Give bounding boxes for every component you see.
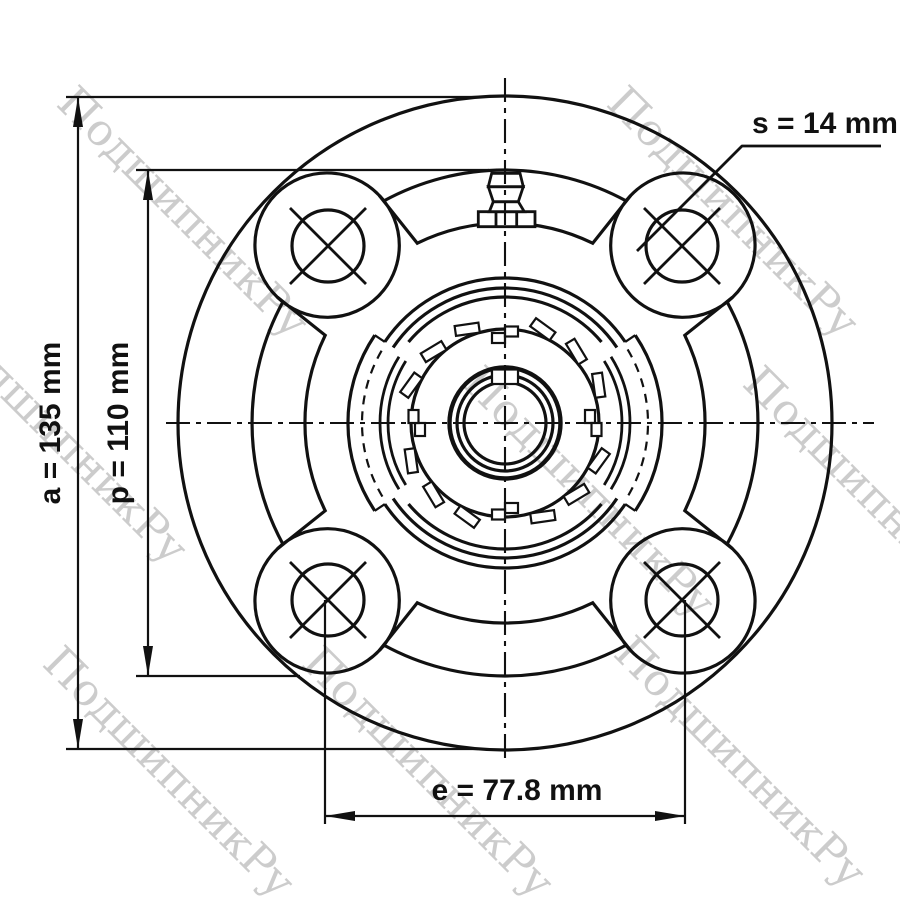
drawing-canvas: ПодшипникРу ПодшипникРу ПодшипникРу Подш…	[0, 0, 900, 900]
arrowhead-down	[73, 719, 83, 749]
grease-fitting	[478, 173, 535, 226]
dimension-s-label: s = 14 mm	[752, 107, 898, 140]
grease-fitting-base	[478, 212, 535, 227]
watermark-text: ПодшипникРу	[604, 627, 876, 899]
bearing-unit-technical-drawing: ПодшипникРу ПодшипникРу ПодшипникРу Подш…	[0, 0, 900, 900]
arrowhead-left	[325, 811, 355, 821]
bolt-hole-cross	[290, 208, 366, 284]
bolt-hole-cross	[644, 208, 720, 284]
dimension-a-label: a = 135 mm	[34, 342, 67, 505]
bolt-hole-cross	[290, 562, 366, 638]
dimension-e-label: e = 77.8 mm	[432, 774, 603, 807]
grease-fitting-collar	[489, 202, 524, 212]
dimension-p-label: p = 110 mm	[102, 342, 135, 505]
arrowhead-down	[143, 646, 153, 676]
watermark-text: ПодшипникРу	[0, 303, 198, 575]
arrowhead-right	[655, 811, 685, 821]
